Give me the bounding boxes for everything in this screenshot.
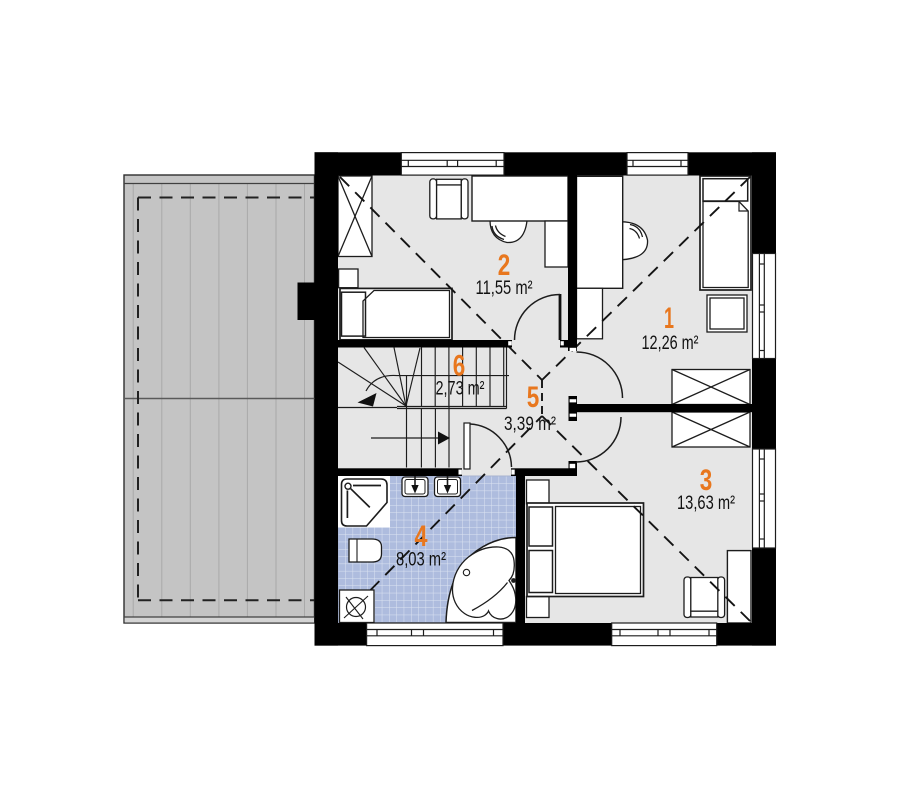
svg-text:8,03 m²: 8,03 m² xyxy=(396,550,446,571)
svg-text:13,63 m²: 13,63 m² xyxy=(677,493,735,514)
svg-text:5: 5 xyxy=(527,381,540,414)
svg-text:3,39 m²: 3,39 m² xyxy=(504,414,556,435)
svg-text:12,26 m²: 12,26 m² xyxy=(642,333,699,354)
svg-text:1: 1 xyxy=(664,302,674,335)
svg-text:11,55 m²: 11,55 m² xyxy=(476,278,533,299)
svg-text:2,73 m²: 2,73 m² xyxy=(436,379,485,400)
svg-text:4: 4 xyxy=(415,520,428,553)
